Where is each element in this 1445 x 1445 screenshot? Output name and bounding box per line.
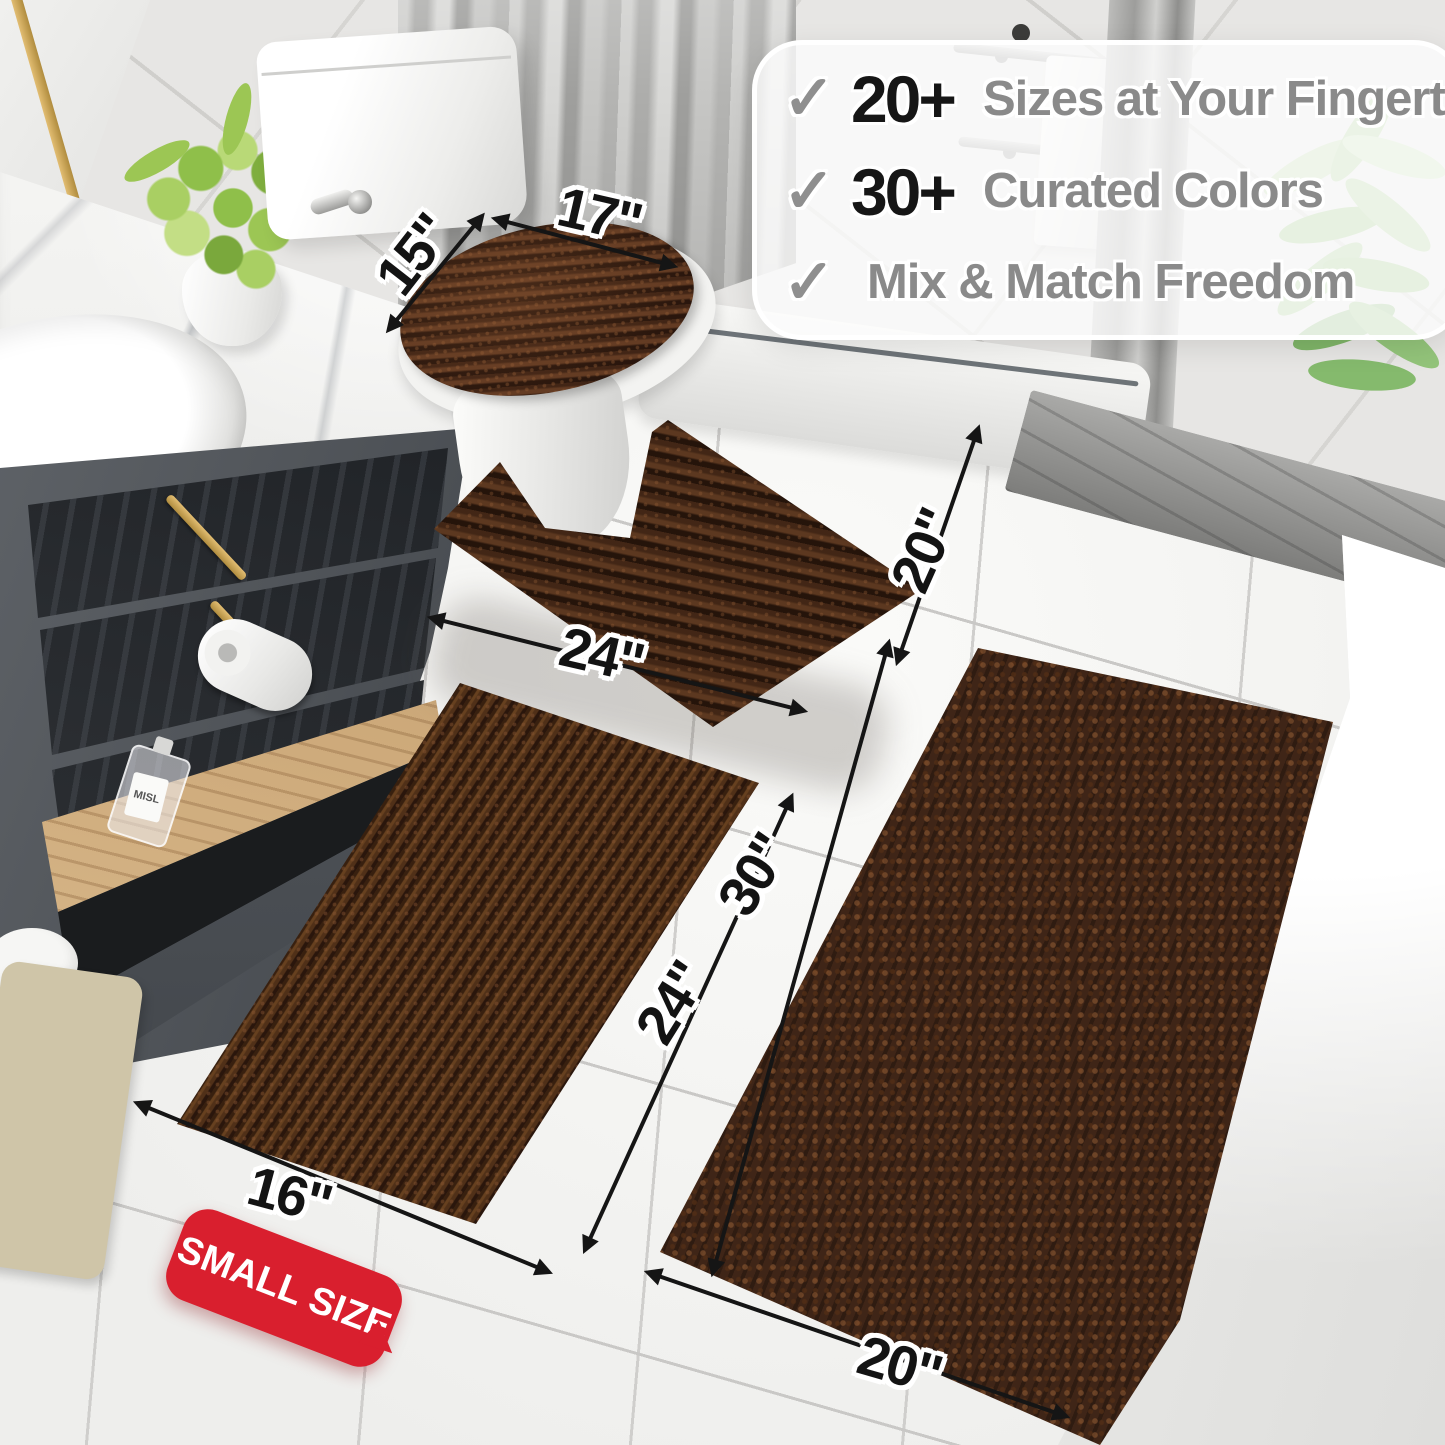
feature-label: Sizes at Your Fingertips: [983, 75, 1445, 124]
feature-stat: 30+: [851, 159, 967, 225]
bathroom-product-scene: MISL 15" 17" 20" 24" 30" 24" 16" 20" SMA…: [0, 0, 1445, 1445]
feature-callout-card: ✓ 20+ Sizes at Your Fingertips ✓ 30+ Cur…: [752, 40, 1445, 340]
checkmark-icon: ✓: [783, 161, 835, 223]
feature-label: Curated Colors: [983, 167, 1323, 216]
feature-row: ✓ 30+ Curated Colors: [783, 159, 1445, 225]
bottle-label: MISL: [124, 772, 170, 823]
checkmark-icon: ✓: [783, 252, 835, 314]
toilet-chrome-hinge: [348, 190, 372, 214]
plant-leaf: [1307, 355, 1417, 394]
feature-label: Mix & Match Freedom: [867, 258, 1354, 307]
feature-stat: 20+: [851, 66, 967, 132]
feature-row: ✓ Mix & Match Freedom: [783, 252, 1445, 314]
checkmark-icon: ✓: [783, 68, 835, 130]
feature-row: ✓ 20+ Sizes at Your Fingertips: [783, 66, 1445, 132]
